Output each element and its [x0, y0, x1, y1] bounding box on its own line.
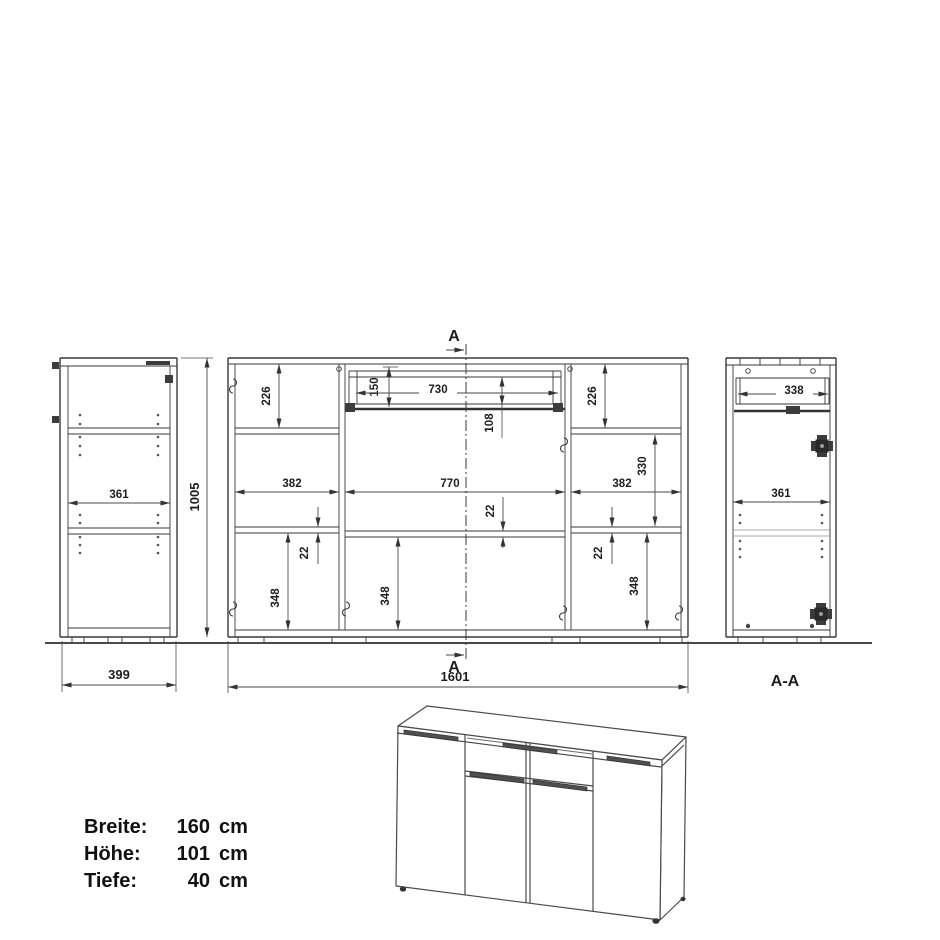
drawer-glide-icon	[165, 375, 173, 383]
spec-unit: cm	[219, 868, 248, 895]
section-marker-top: A	[448, 328, 460, 345]
dim-label: 361	[771, 488, 791, 500]
shelf-pin-holes	[79, 414, 160, 555]
drawer-glide-icon	[553, 403, 563, 412]
dim-bottom-right: 348	[629, 533, 647, 630]
screw-icon	[568, 367, 573, 372]
dim-label: 770	[440, 478, 459, 490]
dim-label: 730	[428, 384, 447, 396]
dim-shelf-right: 22	[593, 507, 612, 564]
wall-bracket-icon	[52, 416, 59, 423]
dim-label: 226	[261, 386, 273, 405]
product-render	[396, 706, 686, 924]
screw-icon	[746, 624, 750, 628]
section-marker-bottom: A	[448, 659, 460, 676]
hinge-arc-icon	[561, 438, 568, 452]
screw-icon	[810, 624, 814, 628]
dim-front-right-width: 382	[571, 478, 681, 492]
dim-label: 150	[369, 377, 381, 396]
spec-value: 160	[168, 814, 210, 841]
dim-label: 22	[299, 547, 311, 560]
dim-side-depth: 399	[62, 641, 176, 692]
dim-section-inner-width: 361	[733, 488, 830, 502]
dim-label: 22	[485, 505, 497, 518]
dim-label: 1005	[187, 483, 202, 512]
dim-label: 330	[637, 456, 649, 475]
spec-row-tiefe: Tiefe:40cm	[84, 868, 248, 895]
section-cut-line: A A	[446, 328, 466, 676]
drawing-canvas: 361 399 1005	[0, 0, 940, 940]
dim-label: 361	[109, 489, 129, 501]
foot	[652, 918, 659, 924]
spec-unit: cm	[219, 814, 248, 841]
dim-label: 22	[593, 547, 605, 560]
spec-row-hoehe: Höhe:101cm	[84, 841, 248, 868]
side-view: 361 399 1005	[52, 358, 213, 692]
dim-section-drawer-depth: 338	[738, 383, 828, 397]
dim-drawer-height: 150	[369, 367, 398, 407]
dim-label: 108	[484, 413, 496, 433]
spec-label: Tiefe:	[84, 868, 168, 895]
hinge-arc-icon	[343, 602, 350, 616]
front-view: 226 150 730 108 226 330 382	[228, 328, 688, 693]
spec-value: 40	[168, 868, 210, 895]
spec-label: Höhe:	[84, 841, 168, 868]
dim-shelf-left: 22	[299, 507, 318, 564]
dim-front-right-mid: 330	[637, 435, 655, 526]
dim-drawer-box-height: 108	[484, 377, 502, 438]
spec-unit: cm	[219, 841, 248, 868]
dim-drawer-width: 730	[356, 382, 558, 396]
foot	[400, 886, 406, 891]
hinge-icon	[810, 603, 832, 625]
dim-front-left-top: 226	[261, 364, 279, 428]
dim-front-left-width: 382	[235, 478, 339, 492]
foot	[680, 897, 685, 901]
drawer-glide-icon	[786, 406, 800, 414]
dim-side-inner-width: 361	[68, 489, 170, 503]
dim-label: 338	[784, 385, 804, 397]
screw-icon	[746, 369, 751, 374]
dim-front-right-top: 226	[587, 364, 605, 428]
dim-front-mid-width: 770	[345, 478, 565, 492]
section-title: A-A	[771, 673, 800, 690]
spec-row-breite: Breite:160cm	[84, 814, 248, 841]
drawer-glide-icon	[146, 361, 170, 365]
wall-bracket-icon	[52, 362, 59, 369]
dim-label: 382	[282, 478, 301, 490]
section-view: 338 361 A-A	[726, 358, 836, 690]
dim-bottom-left: 348	[270, 533, 288, 630]
spec-table: Breite:160cm Höhe:101cm Tiefe:40cm	[84, 814, 248, 895]
drawer-glide-icon	[345, 403, 355, 412]
spec-value: 101	[168, 841, 210, 868]
dim-side-height: 1005	[181, 358, 213, 637]
spec-label: Breite:	[84, 814, 168, 841]
dim-label: 382	[612, 478, 631, 490]
dim-label: 348	[380, 586, 392, 606]
dim-label: 348	[629, 576, 641, 596]
dim-shelf-mid: 22	[485, 497, 503, 548]
technical-drawing-page: 361 399 1005	[0, 0, 940, 940]
dim-label: 348	[270, 588, 282, 608]
dim-label: 226	[587, 386, 599, 405]
dim-bottom-mid: 348	[380, 537, 398, 630]
dim-label: 399	[108, 667, 130, 682]
screw-icon	[811, 369, 816, 374]
